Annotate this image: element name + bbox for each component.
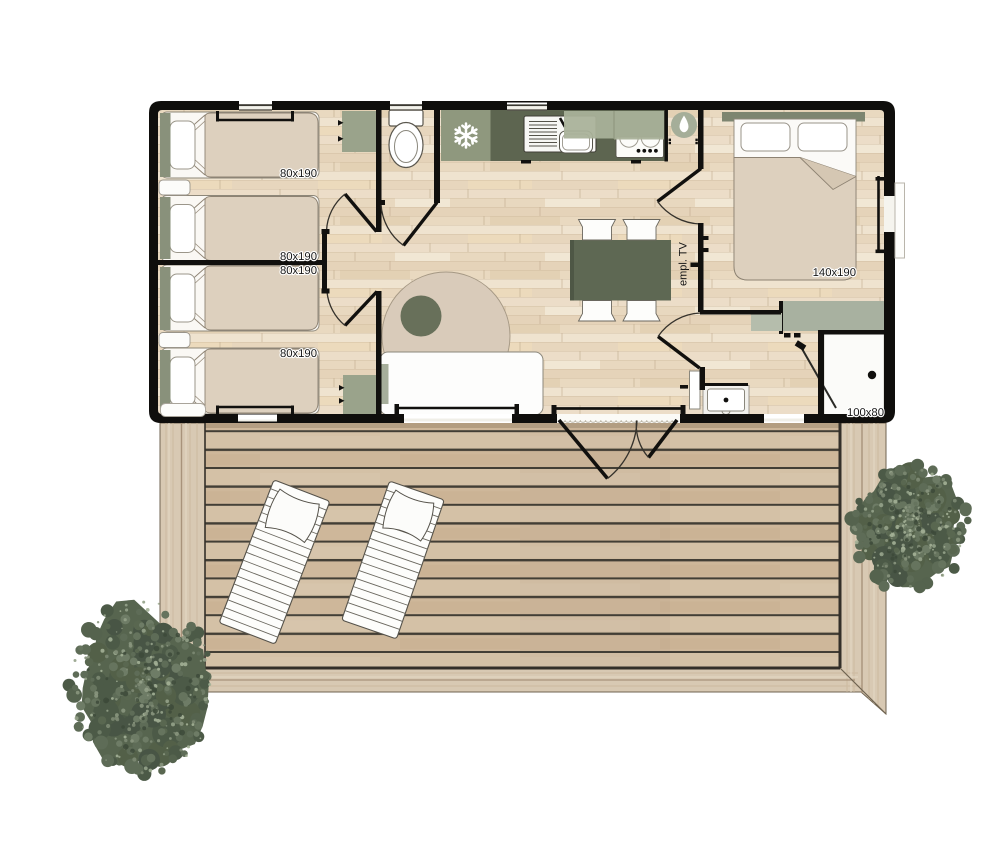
svg-text:100x80: 100x80 [847, 407, 884, 419]
svg-text:80x190: 80x190 [280, 265, 317, 277]
svg-text:80x190: 80x190 [280, 348, 317, 360]
svg-text:140x190: 140x190 [813, 267, 856, 279]
svg-text:empl. TV: empl. TV [678, 242, 690, 286]
svg-text:80x190: 80x190 [280, 251, 317, 263]
svg-text:80x190: 80x190 [280, 168, 317, 180]
